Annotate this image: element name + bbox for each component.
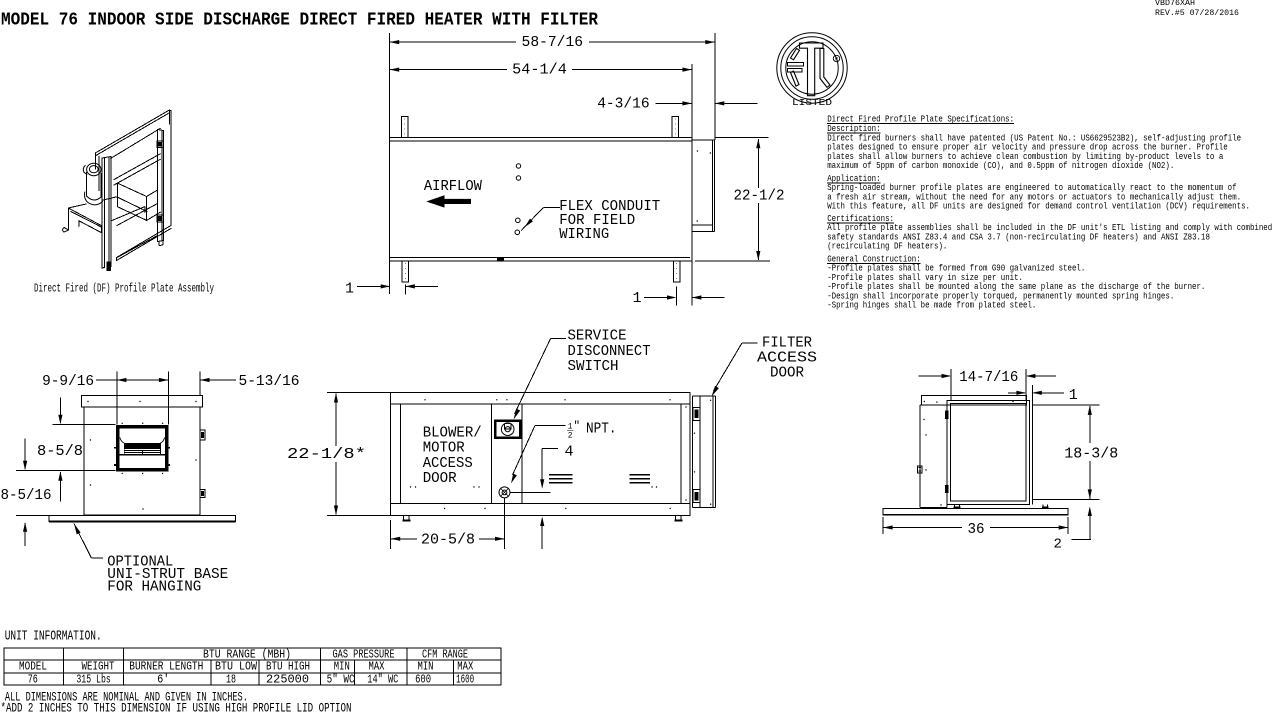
svg-text:REV.#5 07/28/2016: REV.#5 07/28/2016 bbox=[1155, 8, 1239, 18]
svg-text:22-1/8*: 22-1/8* bbox=[287, 446, 366, 463]
svg-text:FOR HANGING: FOR HANGING bbox=[107, 578, 201, 595]
svg-text:54-1/4: 54-1/4 bbox=[512, 62, 567, 79]
svg-text:22-1/2: 22-1/2 bbox=[734, 188, 785, 205]
svg-text:6': 6' bbox=[157, 672, 169, 686]
svg-text:315 Lbs: 315 Lbs bbox=[76, 672, 111, 686]
svg-text:MODEL 76 INDOOR SIDE DISCHARGE: MODEL 76 INDOOR SIDE DISCHARGE DIRECT FI… bbox=[1, 11, 598, 31]
svg-text:8-5/16: 8-5/16 bbox=[1, 487, 52, 504]
svg-text:R: R bbox=[835, 57, 838, 63]
svg-text:LISTED: LISTED bbox=[792, 98, 832, 108]
svg-text:1: 1 bbox=[1069, 387, 1078, 404]
svg-text:2: 2 bbox=[568, 432, 573, 441]
svg-text:With this feature, all DF unit: With this feature, all DF units are desi… bbox=[827, 201, 1250, 212]
svg-text:DOOR: DOOR bbox=[423, 470, 457, 487]
svg-text:36: 36 bbox=[968, 521, 985, 538]
svg-text:": " bbox=[574, 421, 581, 433]
svg-text:1: 1 bbox=[633, 290, 642, 307]
svg-text:14-7/16: 14-7/16 bbox=[959, 369, 1018, 386]
svg-text:(recirculating DF heaters).: (recirculating DF heaters). bbox=[827, 241, 947, 252]
svg-text:WIRING: WIRING bbox=[559, 226, 609, 243]
svg-text:5" WC: 5" WC bbox=[327, 672, 355, 686]
svg-text:NPT.: NPT. bbox=[586, 421, 617, 438]
svg-text:1600: 1600 bbox=[456, 672, 474, 686]
svg-text:Direct Fired (DF) Profile Plat: Direct Fired (DF) Profile Plate Assembly bbox=[34, 282, 214, 296]
svg-text:maximum of 5ppm of carbon mono: maximum of 5ppm of carbon monoxide (CO),… bbox=[827, 160, 1174, 171]
svg-text:5-13/16: 5-13/16 bbox=[239, 373, 300, 390]
svg-text:-Spring hinges shall be made f: -Spring hinges shall be made from plated… bbox=[827, 300, 1036, 311]
svg-text:*ADD 2 INCHES TO THIS DIMENSIO: *ADD 2 INCHES TO THIS DIMENSION IF USING… bbox=[1, 700, 352, 713]
svg-text:DOOR: DOOR bbox=[770, 364, 804, 381]
svg-text:UNIT INFORMATION.: UNIT INFORMATION. bbox=[5, 629, 102, 645]
svg-text:18: 18 bbox=[226, 672, 236, 686]
svg-text:20-5/8: 20-5/8 bbox=[421, 532, 475, 549]
svg-text:225000: 225000 bbox=[266, 672, 309, 686]
svg-text:58-7/16: 58-7/16 bbox=[522, 34, 584, 51]
svg-text:VBD76XAH: VBD76XAH bbox=[1155, 0, 1195, 8]
svg-text:BTU LOW: BTU LOW bbox=[215, 660, 258, 674]
svg-text:8-5/8: 8-5/8 bbox=[37, 443, 83, 460]
svg-text:1: 1 bbox=[345, 281, 354, 298]
svg-text:9-9/16: 9-9/16 bbox=[42, 373, 94, 390]
svg-text:76: 76 bbox=[28, 672, 38, 686]
svg-text:4: 4 bbox=[565, 444, 574, 461]
svg-text:AIRFLOW: AIRFLOW bbox=[424, 178, 482, 195]
svg-text:2: 2 bbox=[1054, 537, 1062, 553]
svg-text:SWITCH: SWITCH bbox=[568, 358, 619, 375]
svg-text:14" WC: 14" WC bbox=[367, 672, 398, 686]
svg-text:18-3/8: 18-3/8 bbox=[1064, 446, 1118, 463]
svg-text:600: 600 bbox=[415, 672, 431, 686]
svg-text:4-3/16: 4-3/16 bbox=[597, 96, 650, 113]
